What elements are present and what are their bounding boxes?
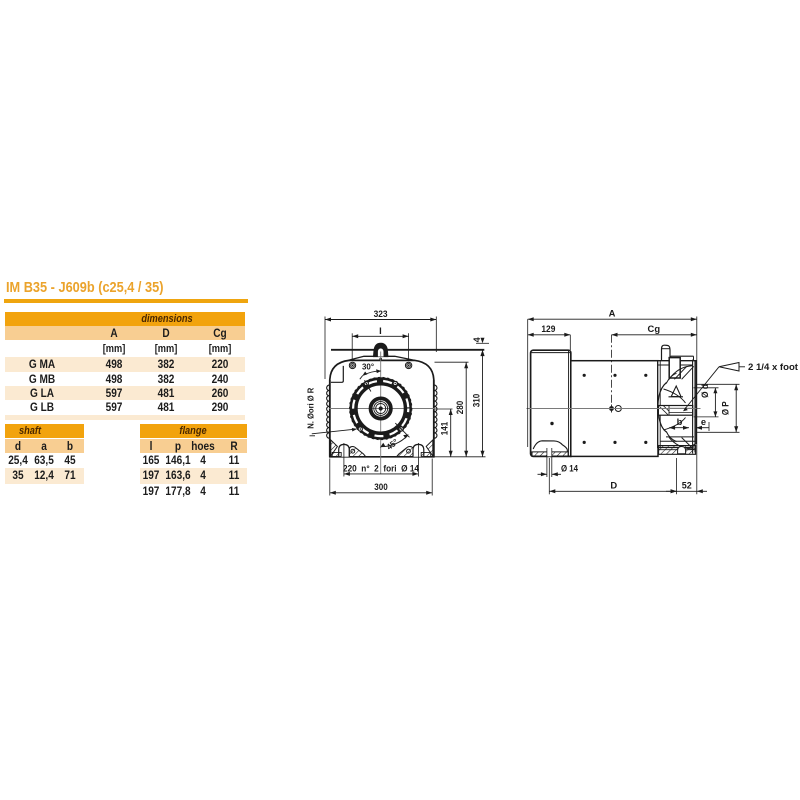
svg-text:220 n° 2 fori Ø 14: 220 n° 2 fori Ø 14 — [343, 462, 420, 473]
svg-text:2 1/4 x foot: 2 1/4 x foot — [748, 361, 798, 372]
svg-text:Ø 14: Ø 14 — [561, 462, 579, 473]
svg-text:323: 323 — [374, 308, 388, 319]
svg-text:Ø d: Ø d — [699, 384, 710, 398]
svg-text:A: A — [609, 307, 616, 318]
svg-text:310: 310 — [470, 394, 481, 408]
svg-text:b: b — [677, 416, 683, 427]
svg-text:D: D — [610, 480, 617, 491]
svg-text:N. Øori Ø R: N. Øori Ø R — [306, 388, 316, 429]
svg-text:4: 4 — [472, 337, 482, 342]
svg-text:129: 129 — [541, 323, 555, 334]
svg-text:141: 141 — [439, 422, 450, 436]
svg-text:e: e — [701, 416, 706, 427]
svg-text:30°: 30° — [362, 361, 374, 371]
svg-text:Ø P: Ø P — [720, 401, 731, 415]
svg-text:300: 300 — [374, 481, 388, 492]
svg-text:Cg: Cg — [648, 323, 661, 334]
svg-text:280: 280 — [454, 401, 465, 415]
svg-text:I: I — [379, 325, 382, 336]
svg-text:52: 52 — [682, 480, 692, 491]
